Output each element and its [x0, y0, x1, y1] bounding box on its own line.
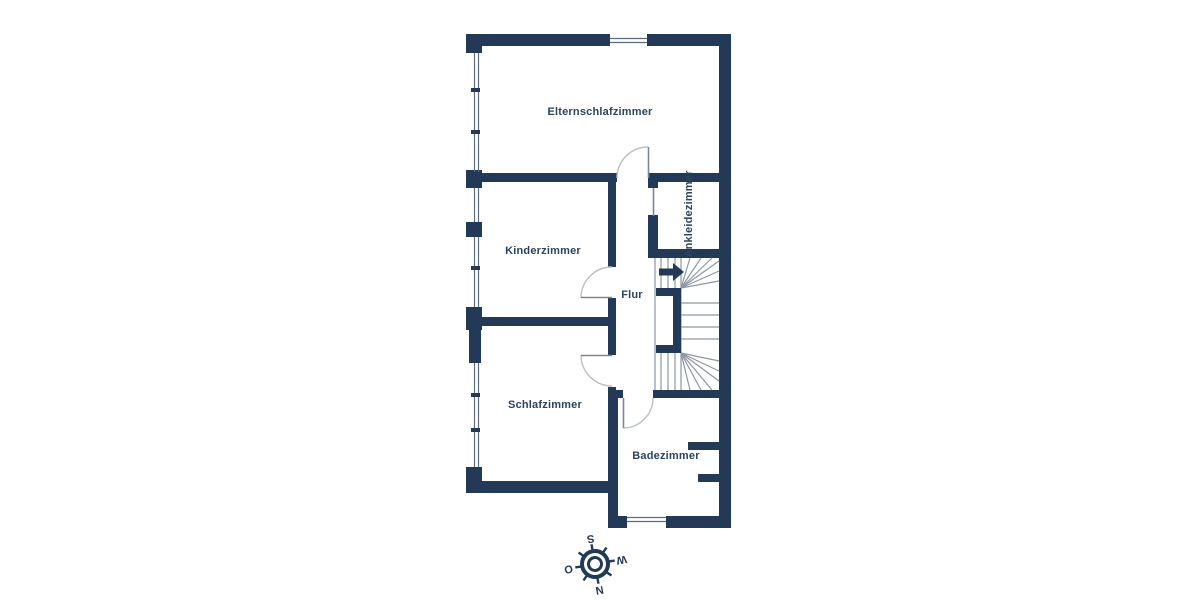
door-bathroom — [623, 398, 653, 428]
window-kids-room-lower — [471, 237, 480, 307]
window-bedroom-left — [471, 363, 480, 467]
window-master-bedroom-top — [610, 39, 647, 43]
door-bedroom — [581, 355, 612, 386]
room-label-bedroom: Schlafzimmer — [508, 399, 582, 411]
floor-plan-drawing: Elternschlafzimmer Kinderzimmer Flur Ank… — [0, 0, 1200, 600]
room-label-kids-room: Kinderzimmer — [505, 245, 581, 257]
stair-spine-wall — [656, 288, 681, 353]
compass-south-label: S — [586, 532, 595, 545]
floor-plan: Elternschlafzimmer Kinderzimmer Flur Ank… — [0, 0, 1200, 600]
compass-north-label: N — [595, 583, 605, 596]
compass-west-label: W — [615, 553, 628, 567]
room-label-master-bedroom: Elternschlafzimmer — [547, 106, 653, 118]
room-label-hallway: Flur — [621, 289, 643, 301]
door-kids-room — [581, 267, 612, 298]
window-master-bedroom-left — [471, 53, 480, 172]
room-label-dressing-room: Ankleidezimmer — [683, 170, 695, 258]
compass-spokes — [572, 541, 618, 587]
window-bathroom-bottom — [627, 518, 666, 522]
window-kids-room-upper — [475, 188, 479, 222]
stair-treads — [655, 258, 719, 390]
stair-direction-arrow-icon — [659, 263, 684, 281]
compass-rose-icon: N S O W — [558, 527, 632, 600]
compass-east-label: O — [563, 562, 574, 575]
room-label-bathroom: Badezimmer — [632, 450, 700, 462]
door-master-bedroom — [617, 147, 649, 178]
doors — [581, 147, 654, 428]
staircase — [655, 258, 719, 390]
